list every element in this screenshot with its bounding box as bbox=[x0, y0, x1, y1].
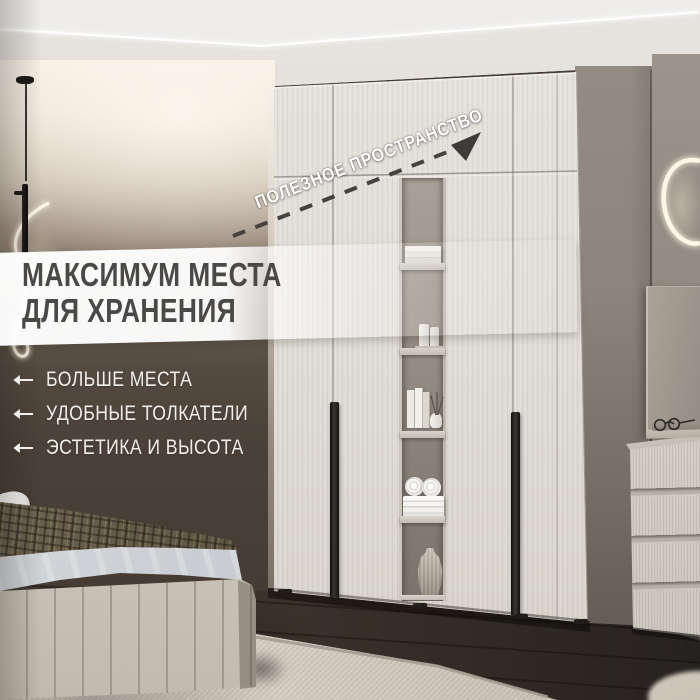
wardrobe-foot bbox=[278, 589, 292, 594]
book-on-dresser bbox=[652, 421, 700, 430]
feature-label: УДОБНЫЕ ТОЛКАТЕЛИ bbox=[46, 401, 248, 426]
wardrobe-foot bbox=[413, 603, 427, 608]
drawer-slot bbox=[628, 581, 700, 591]
book-upright bbox=[423, 392, 430, 428]
left-arrow-icon bbox=[15, 379, 33, 381]
left-arrow-icon bbox=[15, 413, 33, 415]
shelf-board bbox=[400, 595, 445, 600]
feature-label: ЭСТЕТИКА И ВЫСОТА bbox=[46, 435, 244, 460]
rolled-towel bbox=[422, 478, 441, 497]
feature-item: БОЛЬШЕ МЕСТА bbox=[15, 368, 292, 391]
shelf-board bbox=[400, 348, 445, 355]
headline-line-2: ДЛЯ ХРАНЕНИЯ bbox=[22, 293, 282, 329]
left-arrow-icon bbox=[15, 447, 33, 449]
bedroom-photo: МАКСИМУМ МЕСТА ДЛЯ ХРАНЕНИЯ БОЛЬШЕ МЕСТА… bbox=[0, 0, 700, 700]
wardrobe-foot bbox=[514, 614, 528, 619]
book-upright bbox=[415, 388, 423, 428]
folded-towels bbox=[403, 496, 444, 517]
door-handle-right bbox=[511, 412, 520, 618]
book-upright bbox=[407, 390, 415, 428]
shelf-board bbox=[400, 516, 445, 523]
pendant-bracket bbox=[14, 191, 23, 195]
feature-item: ЭСТЕТИКА И ВЫСОТА bbox=[15, 436, 292, 459]
pendant-cord bbox=[25, 83, 27, 181]
neon-glow-right bbox=[645, 145, 700, 265]
headline-line-1: МАКСИМУМ МЕСТА bbox=[22, 257, 282, 293]
drawer-slot bbox=[628, 534, 700, 544]
page-title: МАКСИМУМ МЕСТА ДЛЯ ХРАНЕНИЯ bbox=[22, 257, 347, 329]
reed-diffuser bbox=[430, 413, 442, 428]
wardrobe-foot bbox=[574, 619, 588, 624]
feature-label: БОЛЬШЕ МЕСТА bbox=[46, 367, 192, 392]
feature-item: УДОБНЫЕ ТОЛКАТЕЛИ bbox=[15, 402, 292, 425]
leaning-mirror bbox=[646, 286, 700, 435]
door-handle-left bbox=[330, 402, 339, 613]
pendant-lamp bbox=[22, 184, 28, 254]
shelf-board bbox=[400, 431, 445, 438]
drawer-slot bbox=[628, 487, 700, 497]
feature-list: БОЛЬШЕ МЕСТА УДОБНЫЕ ТОЛКАТЕЛИ ЭСТЕТИКА … bbox=[15, 368, 292, 470]
